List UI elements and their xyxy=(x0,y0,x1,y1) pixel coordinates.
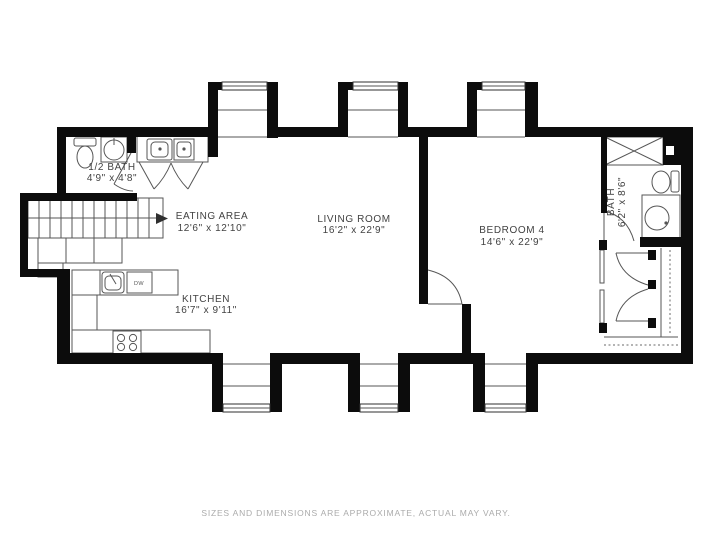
eating-area-label: EATING AREA xyxy=(176,211,249,222)
shower-niche xyxy=(666,146,674,155)
wall-segment xyxy=(348,353,360,412)
wall-segment xyxy=(267,82,278,138)
bedroom-closet xyxy=(600,248,678,345)
wall-segment xyxy=(278,127,338,137)
bath-toilet-bowl xyxy=(652,171,670,193)
stove xyxy=(113,331,141,354)
bath-dims: 6'2" x 8'6" xyxy=(617,177,628,227)
wall-segment xyxy=(212,353,223,412)
wall-segment xyxy=(681,127,693,364)
living-room-label: LIVING ROOM xyxy=(317,214,390,225)
laundry-door-swings xyxy=(139,162,203,189)
window xyxy=(485,404,526,412)
wall-segment xyxy=(538,127,693,137)
wall-segment xyxy=(419,137,428,304)
wall-segment xyxy=(127,137,136,153)
wall-segment xyxy=(467,82,477,137)
wall-segment xyxy=(57,269,70,364)
window xyxy=(223,404,270,412)
wall-segment xyxy=(57,127,208,137)
dishwasher-label: DW xyxy=(134,281,144,287)
bedroom-door-swing xyxy=(428,270,462,304)
wall-segment xyxy=(462,304,471,364)
bath-label: BATH xyxy=(606,188,617,216)
wall-segment xyxy=(398,353,410,412)
bedroom-4-label: BEDROOM 4 xyxy=(479,225,544,236)
wall-segment xyxy=(408,127,467,137)
wall-segment xyxy=(57,127,66,201)
window xyxy=(222,82,267,90)
half-bath-dims: 4'9" x 4'8" xyxy=(87,173,137,184)
kitchen-dims: 16'7" x 9'11" xyxy=(175,305,237,316)
bath-toilet-tank xyxy=(671,171,679,192)
half-bath-toilet-tank xyxy=(74,138,96,146)
wall-segment xyxy=(208,82,218,157)
kitchen-counter-left xyxy=(72,295,97,330)
bay-window-sill-lines xyxy=(218,110,526,386)
wall-segment xyxy=(338,82,348,137)
wall-segment xyxy=(20,193,137,201)
disclaimer-text: SIZES AND DIMENSIONS ARE APPROXIMATE, AC… xyxy=(201,508,510,518)
kitchen-counter-top xyxy=(72,270,178,295)
bath-sink xyxy=(645,206,669,230)
wall-segment xyxy=(208,82,222,90)
floor-plan: DW xyxy=(0,0,711,533)
closet-door-swings xyxy=(600,250,648,323)
wall-segment xyxy=(270,353,282,412)
wall-segment xyxy=(599,240,607,250)
window xyxy=(482,82,525,90)
wall-segment xyxy=(648,318,656,328)
half-bath-label: 1/2 BATH xyxy=(88,162,135,173)
window xyxy=(353,82,398,90)
wall-segment xyxy=(538,353,693,364)
wall-segment xyxy=(338,82,353,90)
wall-segment xyxy=(640,237,681,247)
stairs-direction-arrow-icon xyxy=(156,213,168,224)
wall-segment xyxy=(282,353,348,364)
staircase xyxy=(28,198,168,277)
wall-segment xyxy=(525,82,538,137)
window xyxy=(360,404,398,412)
wall-segment xyxy=(526,353,538,412)
living-room-dims: 16'2" x 22'9" xyxy=(323,225,386,236)
wall-segment xyxy=(648,280,656,289)
wall-segment xyxy=(467,82,482,90)
eating-area-dims: 12'6" x 12'10" xyxy=(178,223,247,234)
walls xyxy=(20,82,693,412)
wall-segment xyxy=(398,82,408,137)
wall-segment xyxy=(473,353,485,412)
floor-plan-image: DW xyxy=(0,0,711,533)
kitchen-label: KITCHEN xyxy=(182,294,230,305)
wall-segment xyxy=(599,323,607,333)
laundry-closet xyxy=(137,136,208,189)
bedroom-4-dims: 14'6" x 22'9" xyxy=(481,237,544,248)
wall-segment xyxy=(648,250,656,260)
wall-segment xyxy=(57,353,212,364)
wall-segment xyxy=(20,193,28,277)
